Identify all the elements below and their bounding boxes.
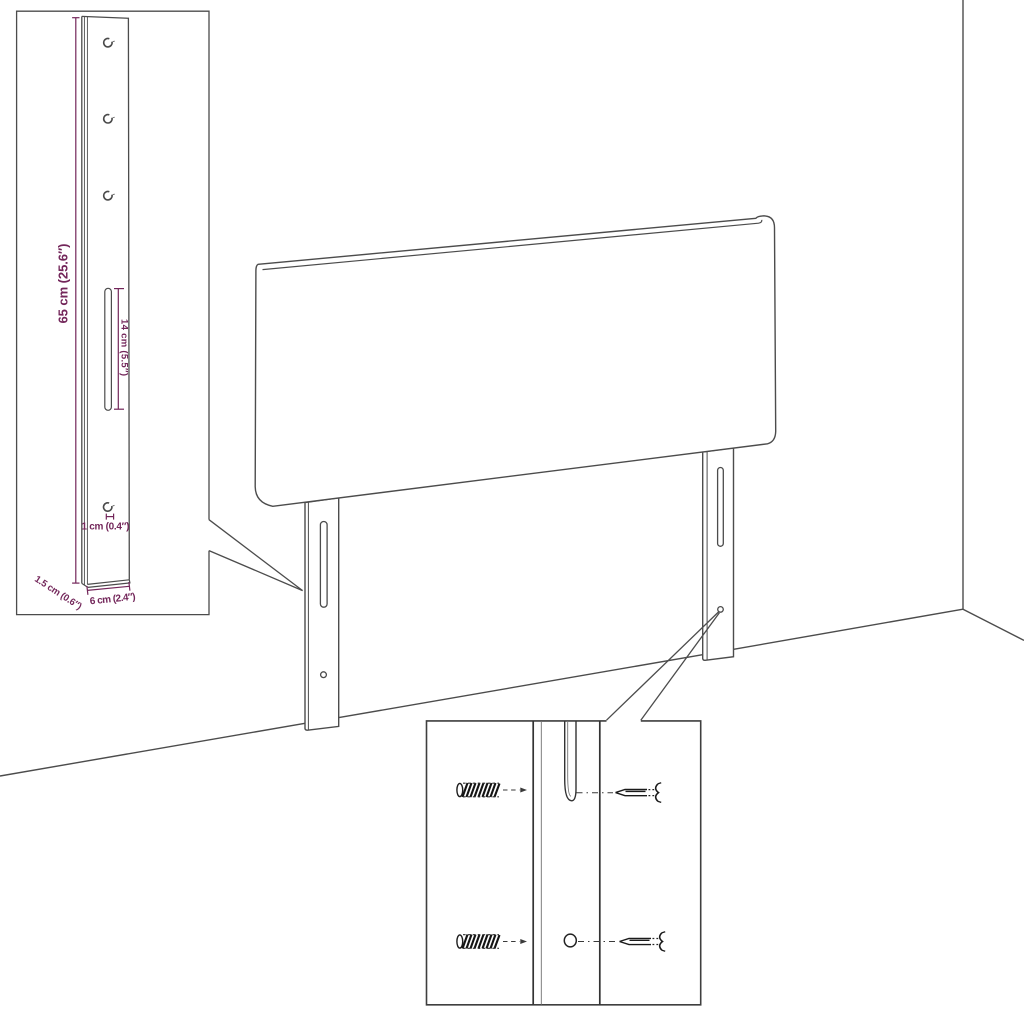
svg-text:1 cm (0.4″): 1 cm (0.4″): [82, 522, 130, 533]
svg-text:6 cm (2.4″): 6 cm (2.4″): [89, 592, 136, 608]
svg-text:14 cm (5.5″): 14 cm (5.5″): [118, 319, 129, 376]
svg-text:65 cm (25.6″): 65 cm (25.6″): [56, 244, 71, 324]
